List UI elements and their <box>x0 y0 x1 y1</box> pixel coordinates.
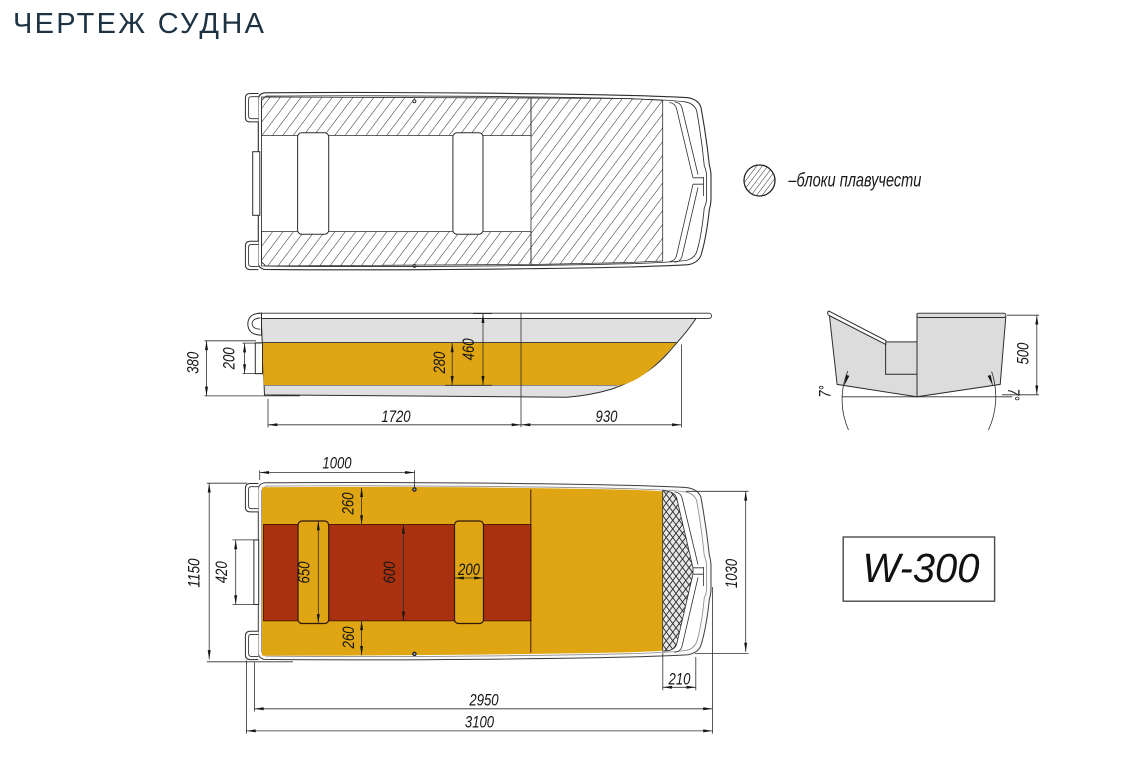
svg-text:650: 650 <box>296 561 314 584</box>
svg-text:500: 500 <box>1015 342 1033 365</box>
svg-text:280: 280 <box>431 351 449 374</box>
svg-text:600: 600 <box>381 561 399 584</box>
svg-text:1150: 1150 <box>186 558 204 588</box>
svg-text:420: 420 <box>213 561 231 584</box>
svg-text:200: 200 <box>457 561 480 579</box>
svg-text:–блоки плавучести: –блоки плавучести <box>788 170 922 191</box>
svg-text:1000: 1000 <box>322 455 352 473</box>
svg-text:930: 930 <box>596 408 619 426</box>
svg-text:200: 200 <box>221 347 239 370</box>
svg-text:3100: 3100 <box>465 713 495 731</box>
svg-text:460: 460 <box>460 338 478 361</box>
svg-text:380: 380 <box>185 351 203 374</box>
svg-text:260: 260 <box>340 626 358 649</box>
svg-text:210: 210 <box>668 670 691 688</box>
svg-text:ЧЕРТЕЖ СУДНА: ЧЕРТЕЖ СУДНА <box>13 8 266 40</box>
svg-text:260: 260 <box>340 492 358 515</box>
svg-text:1720: 1720 <box>381 408 411 426</box>
svg-text:1030: 1030 <box>723 558 741 588</box>
svg-text:7°: 7° <box>817 385 835 397</box>
svg-text:W-300: W-300 <box>863 545 980 591</box>
svg-text:2950: 2950 <box>469 691 500 709</box>
